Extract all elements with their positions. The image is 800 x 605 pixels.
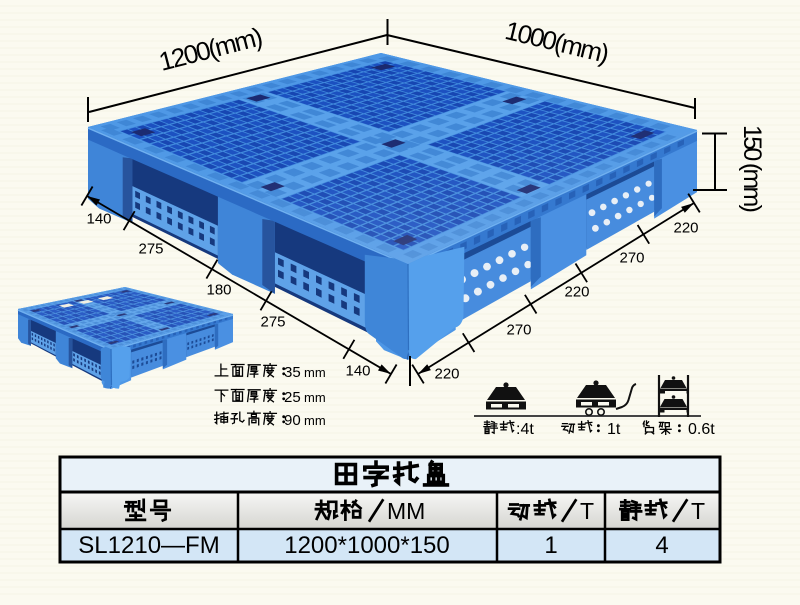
svg-text:220: 220 <box>673 219 698 236</box>
svg-text:mm: mm <box>304 390 326 405</box>
svg-text:4: 4 <box>655 532 668 559</box>
svg-text:0.6t: 0.6t <box>688 421 715 438</box>
svg-text:275: 275 <box>138 240 163 257</box>
svg-text:140: 140 <box>345 362 370 379</box>
svg-text:180: 180 <box>206 281 231 298</box>
svg-text:220: 220 <box>434 365 459 382</box>
svg-text:90: 90 <box>284 412 301 429</box>
svg-text:150 (mm): 150 (mm) <box>738 125 766 213</box>
svg-text:275: 275 <box>260 313 285 330</box>
svg-text:1: 1 <box>544 532 557 559</box>
svg-text:220: 220 <box>564 283 589 300</box>
svg-text:270: 270 <box>619 249 644 266</box>
svg-text:25: 25 <box>284 389 301 406</box>
svg-text:1200*1000*150: 1200*1000*150 <box>284 532 450 559</box>
svg-text:270: 270 <box>506 321 531 338</box>
svg-text:SL1210—FM: SL1210—FM <box>78 532 219 559</box>
svg-text:MM: MM <box>387 498 425 524</box>
svg-text:mm: mm <box>304 365 326 380</box>
svg-text:1t: 1t <box>607 421 621 438</box>
svg-text:140: 140 <box>86 210 111 227</box>
svg-text::4t: :4t <box>516 421 534 438</box>
svg-text:35: 35 <box>284 364 301 381</box>
svg-text:mm: mm <box>304 413 326 428</box>
svg-text:T: T <box>691 498 705 524</box>
svg-text:T: T <box>580 498 594 524</box>
